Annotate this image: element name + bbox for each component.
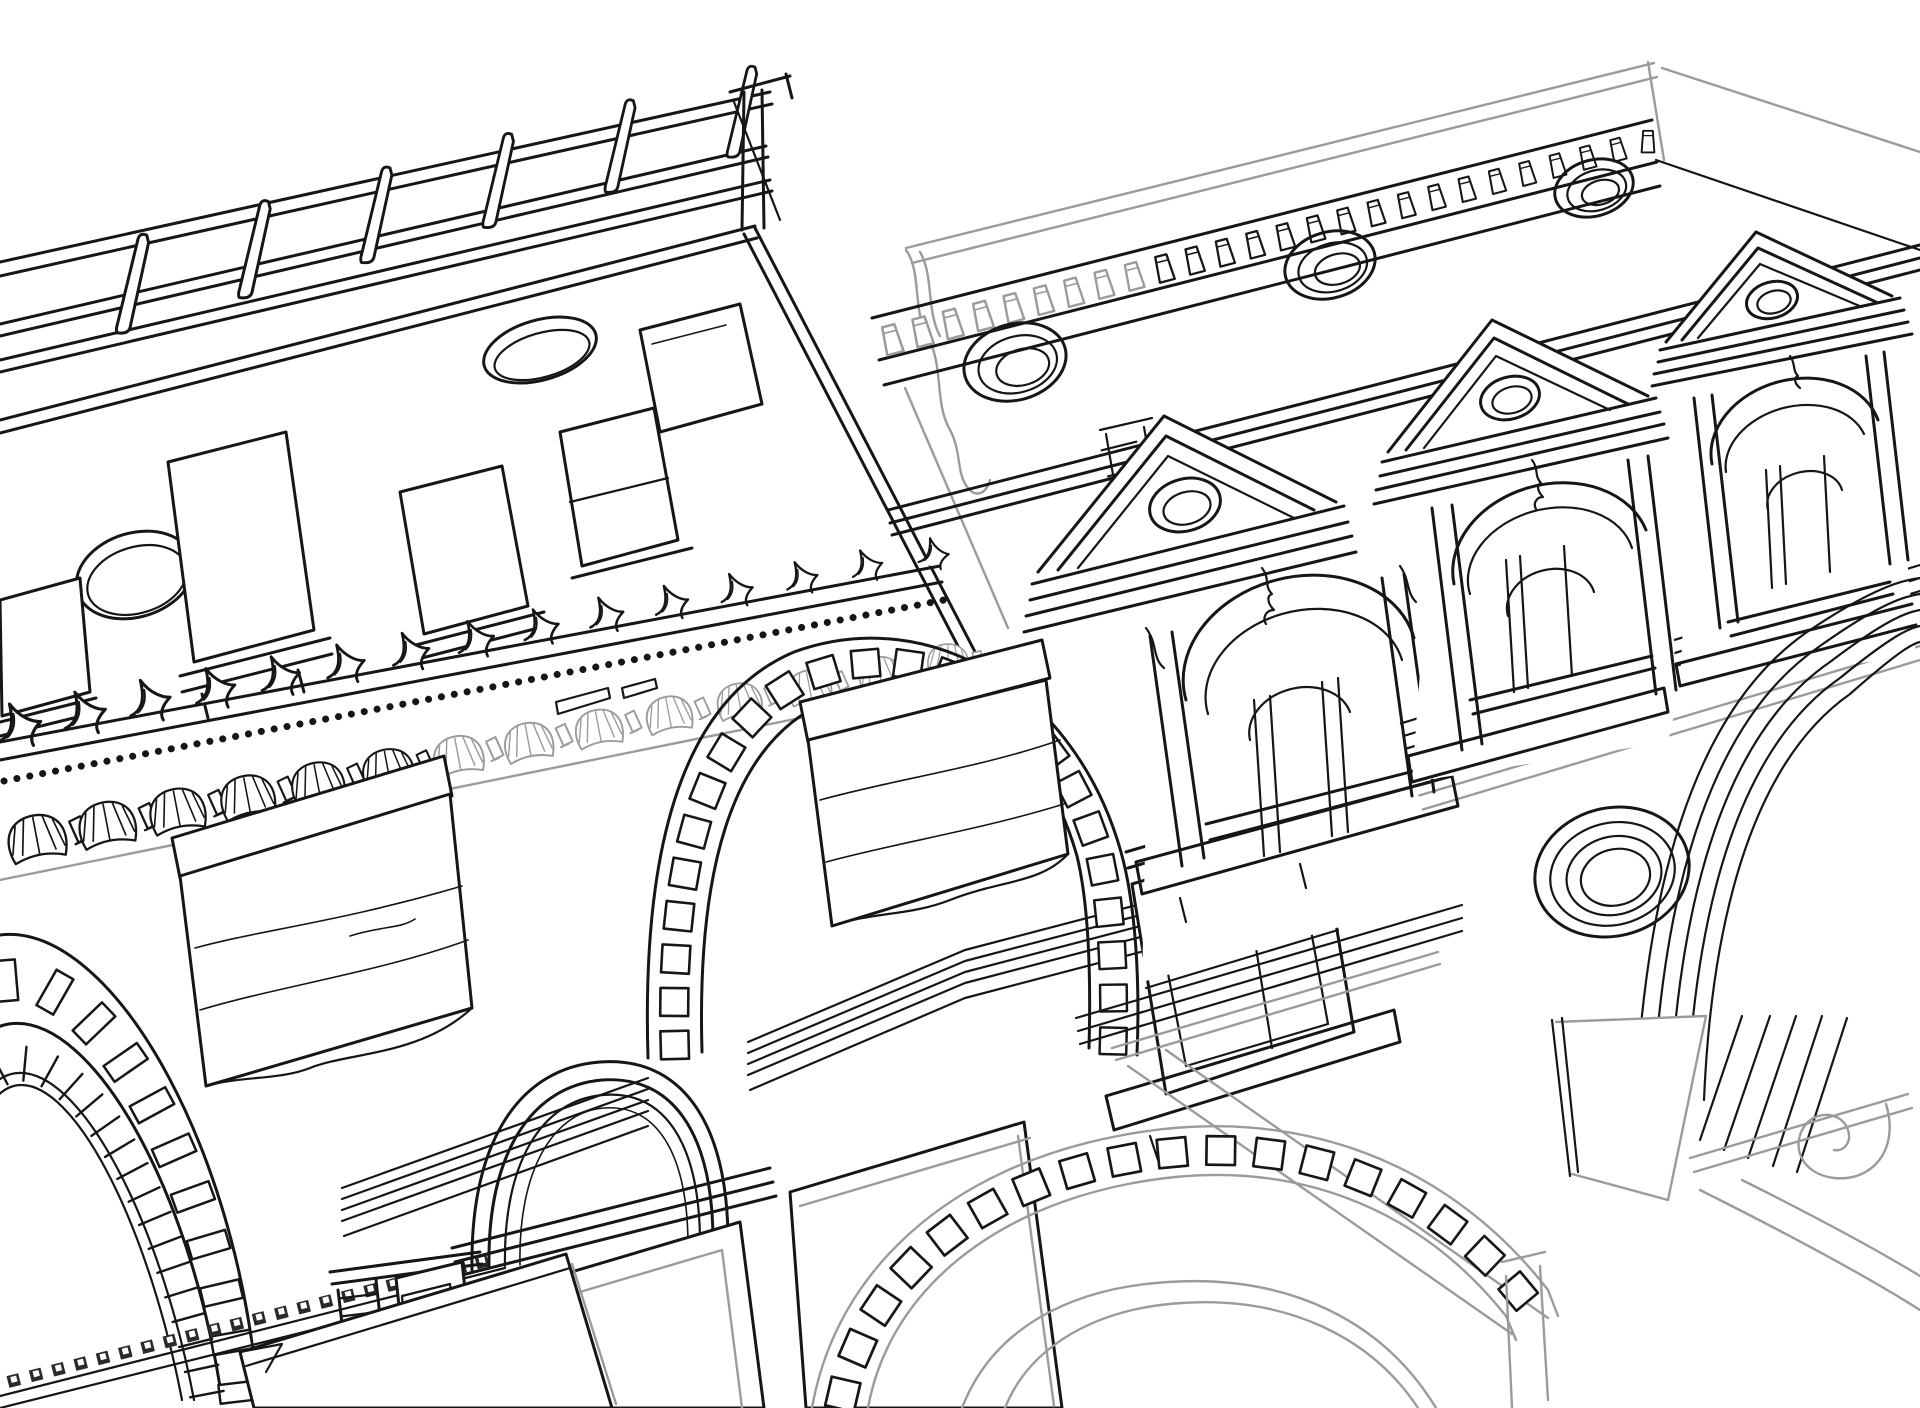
roof-window [640, 304, 762, 432]
parapet-end-curl [906, 250, 990, 494]
roof-edges [0, 226, 1008, 704]
attic-window [168, 432, 314, 662]
capital-zone [1552, 1016, 1920, 1310]
drawing-svg [0, 0, 1920, 1408]
shaft [1700, 1180, 1920, 1310]
line-art-canvas [0, 0, 1920, 1408]
volute [1799, 1104, 1890, 1178]
ring-oculus [1277, 221, 1384, 310]
oval-oculus [476, 305, 604, 395]
aedicula-window-3 [1652, 232, 1916, 686]
attic-window [400, 466, 528, 634]
wall-dashes [556, 679, 657, 714]
balustrade-posts [116, 64, 758, 335]
aedicula-window-2 [1374, 320, 1676, 782]
spandrel-oculus [1520, 790, 1704, 954]
string-courses [342, 878, 1240, 1236]
